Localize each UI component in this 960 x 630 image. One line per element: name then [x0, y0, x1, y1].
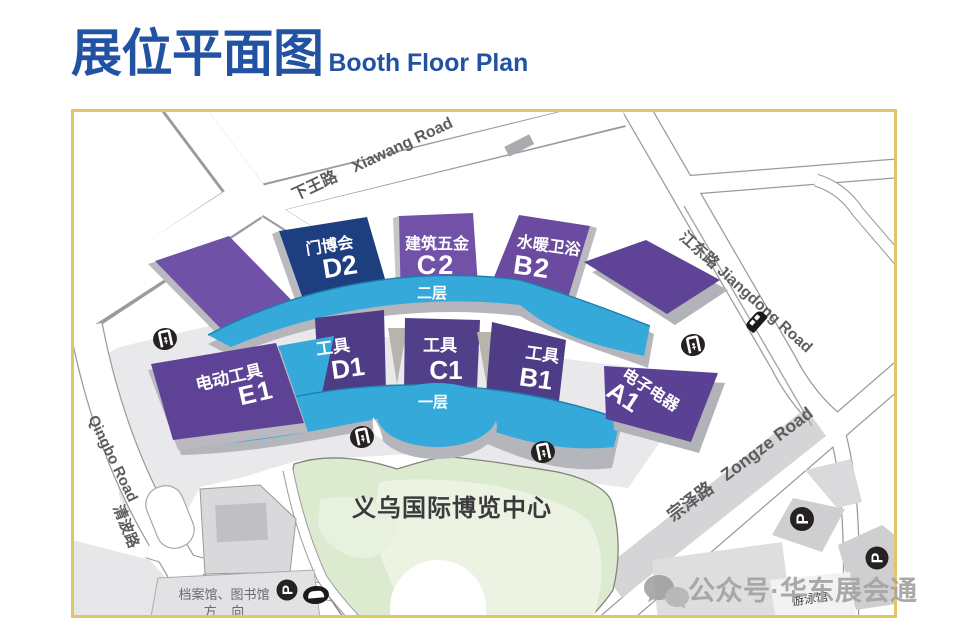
- svg-text:义乌国际博览中心: 义乌国际博览中心: [352, 494, 552, 522]
- svg-text:P: P: [870, 552, 887, 563]
- svg-text:档案馆、图书馆: 档案馆、图书馆: [178, 587, 269, 602]
- svg-text:P: P: [280, 585, 297, 595]
- svg-text:C1: C1: [429, 355, 462, 385]
- svg-text:P: P: [793, 513, 812, 524]
- svg-text:工具: 工具: [423, 336, 457, 355]
- svg-text:二层: 二层: [417, 285, 447, 302]
- svg-text:C2: C2: [417, 250, 456, 280]
- svg-text:公众号·华东展会通: 公众号·华东展会通: [688, 575, 918, 606]
- svg-text:B2: B2: [512, 250, 552, 285]
- svg-text:D1: D1: [329, 351, 366, 385]
- svg-text:D2: D2: [321, 249, 360, 284]
- svg-text:B1: B1: [518, 361, 555, 395]
- svg-text:一层: 一层: [418, 394, 448, 411]
